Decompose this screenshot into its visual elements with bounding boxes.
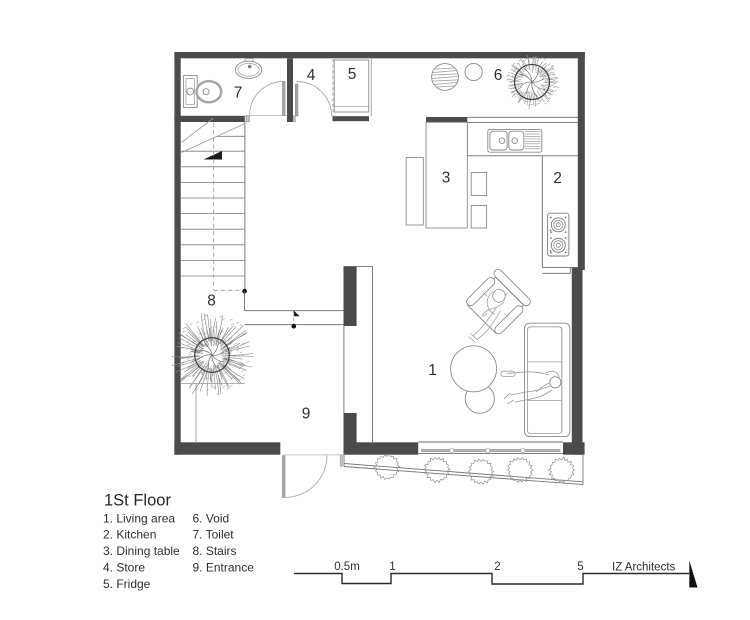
svg-text:4. Store: 4. Store: [103, 561, 145, 575]
svg-text:5: 5: [577, 561, 583, 573]
svg-text:3: 3: [442, 170, 451, 187]
svg-text:9: 9: [302, 406, 311, 423]
svg-text:7: 7: [234, 85, 243, 102]
svg-text:8: 8: [207, 293, 216, 310]
svg-text:9. Entrance: 9. Entrance: [193, 561, 255, 575]
svg-text:7. Toilet: 7. Toilet: [193, 528, 235, 542]
svg-text:1: 1: [389, 561, 395, 573]
svg-text:1: 1: [428, 362, 437, 379]
svg-text:8. Stairs: 8. Stairs: [193, 544, 237, 558]
svg-text:4: 4: [307, 67, 316, 84]
svg-text:1. Living area: 1. Living area: [103, 511, 175, 525]
svg-text:6: 6: [494, 67, 503, 84]
svg-text:5. Fridge: 5. Fridge: [103, 577, 151, 591]
svg-text:6. Void: 6. Void: [193, 511, 230, 525]
svg-text:5: 5: [348, 66, 357, 83]
svg-text:2: 2: [494, 561, 500, 573]
svg-text:2: 2: [553, 170, 562, 187]
svg-text:1St Floor: 1St Floor: [104, 492, 171, 510]
svg-text:3. Dining table: 3. Dining table: [103, 544, 180, 558]
svg-text:IZ Architects: IZ Architects: [612, 562, 676, 574]
svg-text:2. Kitchen: 2. Kitchen: [103, 528, 156, 542]
svg-text:0.5m: 0.5m: [334, 561, 360, 573]
